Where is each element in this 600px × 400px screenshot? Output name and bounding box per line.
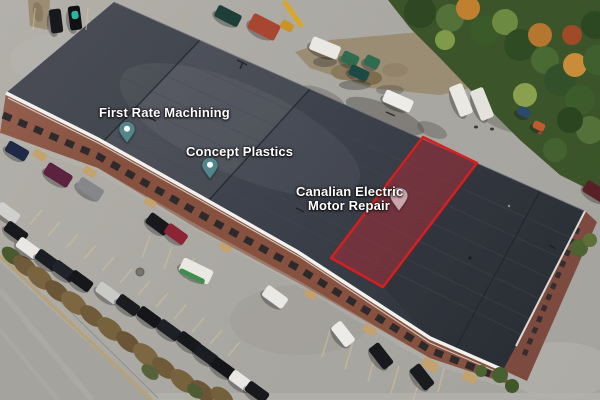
manhole-cover	[136, 268, 144, 276]
label-canalian-electric-motor-repair[interactable]: Canalian Electric Motor Repair	[296, 185, 390, 212]
map-pin-icon[interactable]	[202, 157, 218, 180]
label-text: First Rate Machining	[99, 105, 230, 120]
vehicle	[474, 126, 478, 129]
label-concept-plastics[interactable]: Concept Plastics	[186, 145, 281, 159]
vehicle	[490, 128, 494, 131]
vehicle	[538, 132, 542, 135]
label-text: Concept Plastics	[186, 144, 293, 159]
dirt-strip	[28, 0, 50, 30]
vehicle	[71, 11, 79, 20]
label-text-line2: Motor Repair	[308, 198, 390, 213]
label-first-rate-machining[interactable]: First Rate Machining	[99, 106, 211, 120]
satellite-map-view[interactable]: First Rate Machining Concept Plastics Ca…	[0, 0, 600, 400]
map-pin-icon[interactable]	[119, 121, 135, 144]
